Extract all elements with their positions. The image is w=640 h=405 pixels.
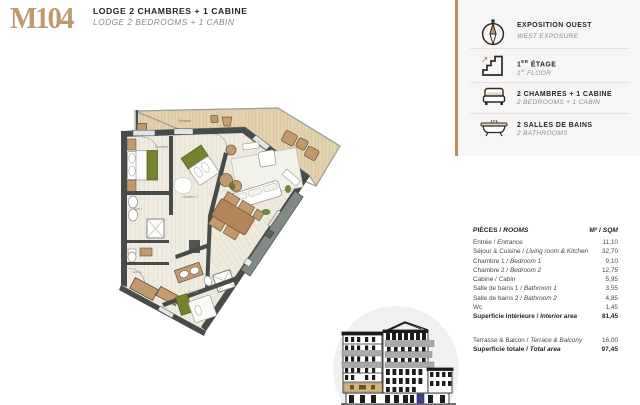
- svg-text:Cabine: Cabine: [188, 290, 198, 294]
- svg-text:Terrasse: Terrasse: [178, 119, 191, 123]
- svg-text:Chambre 2: Chambre 2: [182, 195, 198, 199]
- svg-text:SdB 1: SdB 1: [134, 207, 143, 211]
